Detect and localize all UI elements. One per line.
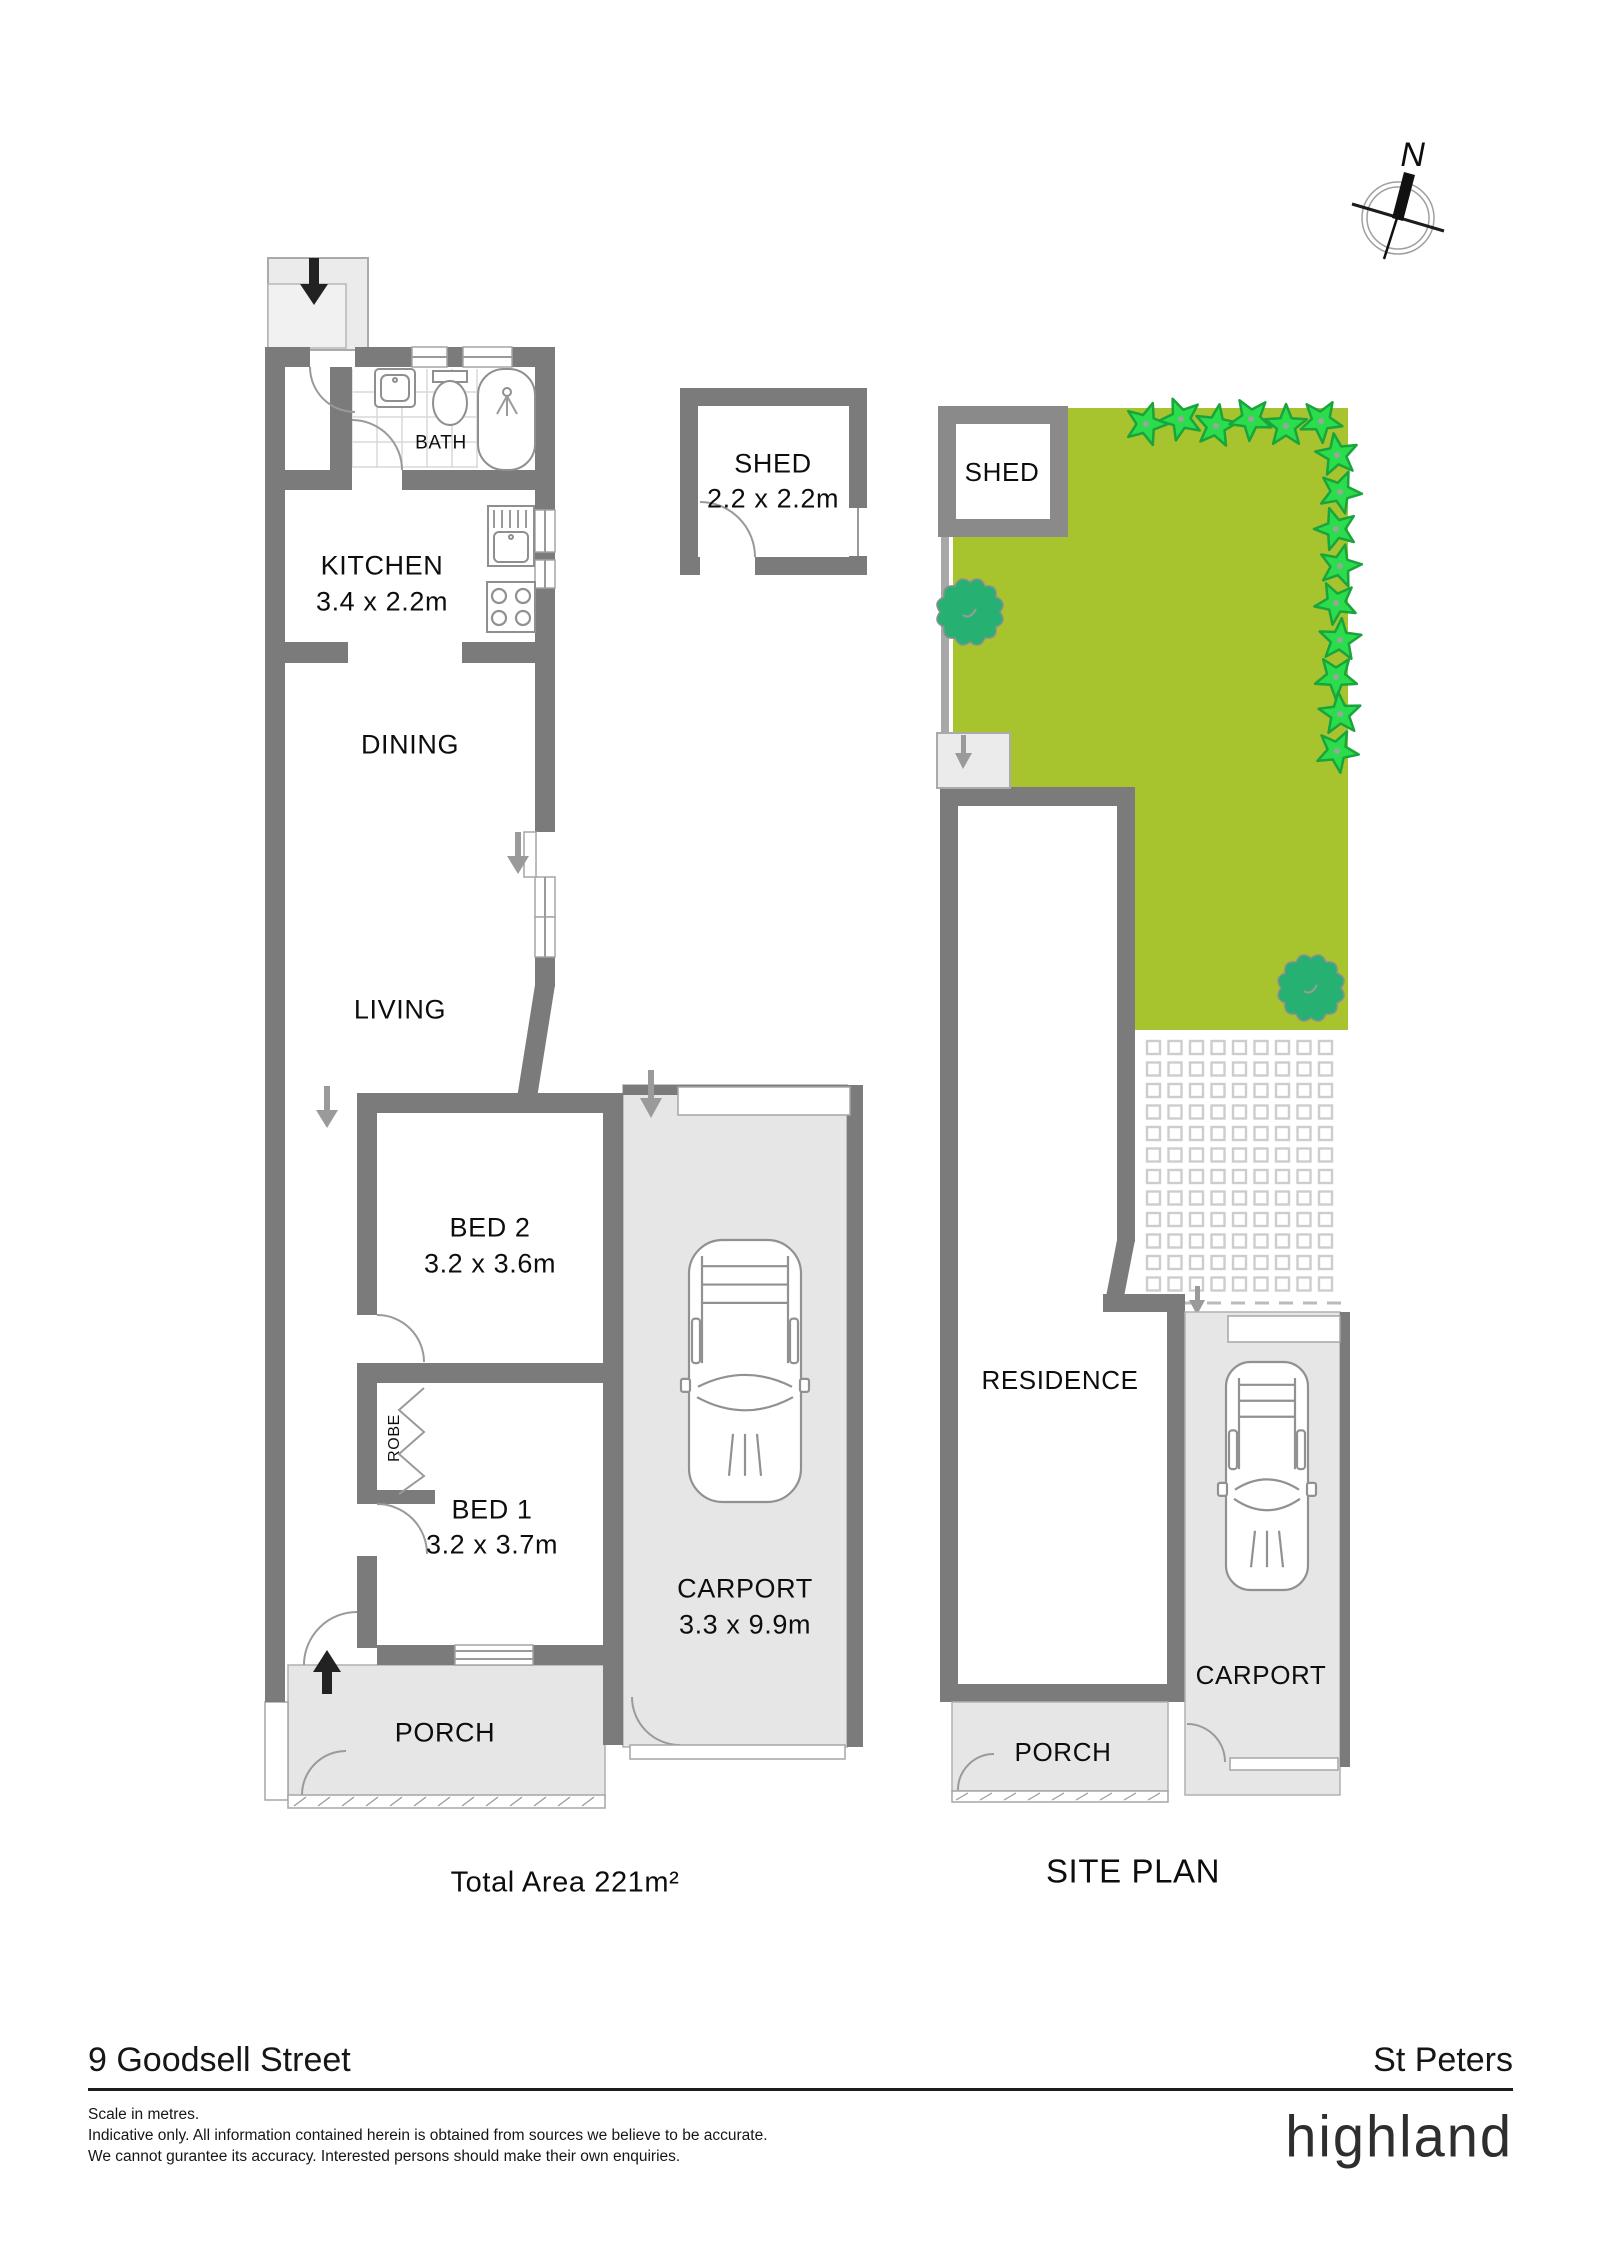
room-label-bed1: BED 1 xyxy=(451,1497,532,1524)
porch-side-step xyxy=(265,1702,288,1800)
carport-threshold xyxy=(630,1745,845,1759)
room-label-carport: CARPORT xyxy=(677,1576,813,1603)
carport-opening xyxy=(678,1087,850,1115)
room-label-bed2: BED 2 xyxy=(449,1215,530,1242)
site-plan-title: SITE PLAN xyxy=(1046,1855,1220,1888)
site-plan xyxy=(937,399,1362,1802)
room-label-shed: SHED xyxy=(734,451,811,478)
car-top-view xyxy=(681,1240,809,1502)
residence-rear-stoop xyxy=(937,733,1010,788)
room-label-porch: PORCH xyxy=(395,1720,496,1747)
room-label-robe: ROBE xyxy=(387,1414,403,1462)
room-label-bath: BATH xyxy=(415,434,467,453)
property-address: 9 Goodsell Street xyxy=(88,2041,351,2080)
room-dims-bed1: 3.2 x 3.7m xyxy=(426,1532,558,1559)
agency-logo: highland xyxy=(1285,2102,1513,2170)
site-car-top-view xyxy=(1218,1362,1316,1590)
site-carport-threshold xyxy=(1230,1758,1338,1770)
disclaimer-line-2: We cannot gurantee its accuracy. Interes… xyxy=(88,2148,680,2166)
total-area: Total Area 221m² xyxy=(451,1869,680,1898)
room-label-living: LIVING xyxy=(354,997,446,1024)
footer-divider xyxy=(88,2088,1513,2091)
room-label-dining: DINING xyxy=(361,732,459,759)
scale-note: Scale in metres. xyxy=(88,2106,199,2124)
disclaimer-line-1: Indicative only. All information contain… xyxy=(88,2127,768,2145)
bathtub-icon xyxy=(478,369,535,470)
room-label-kitchen: KITCHEN xyxy=(321,553,444,580)
site-carport-opening xyxy=(1228,1316,1340,1342)
porch-edge xyxy=(288,1795,605,1808)
site-carport-wall xyxy=(1340,1312,1350,1767)
shed-floor-plan xyxy=(680,388,867,575)
kitchen-fixtures xyxy=(487,506,535,632)
plan-graphic xyxy=(0,0,1600,2263)
room-dims-kitchen: 3.4 x 2.2m xyxy=(316,589,448,616)
site-label-carport: CARPORT xyxy=(1196,1662,1327,1688)
hall-opening-arrow-icon xyxy=(316,1086,338,1128)
room-dims-bed2: 3.2 x 3.6m xyxy=(424,1251,556,1278)
site-label-porch: PORCH xyxy=(1015,1739,1112,1765)
floorplan-page: { "compass": { "label": "N" }, "floor_pl… xyxy=(0,0,1600,2263)
property-suburb: St Peters xyxy=(1373,2041,1513,2080)
room-dims-shed: 2.2 x 2.2m xyxy=(707,486,839,513)
site-label-residence: RESIDENCE xyxy=(981,1367,1138,1393)
compass-label: N xyxy=(1400,138,1425,172)
compass-icon xyxy=(1352,172,1444,259)
paved-courtyard xyxy=(1135,1030,1348,1304)
room-dims-carport: 3.3 x 9.9m xyxy=(679,1612,811,1639)
site-label-shed: SHED xyxy=(965,459,1040,485)
